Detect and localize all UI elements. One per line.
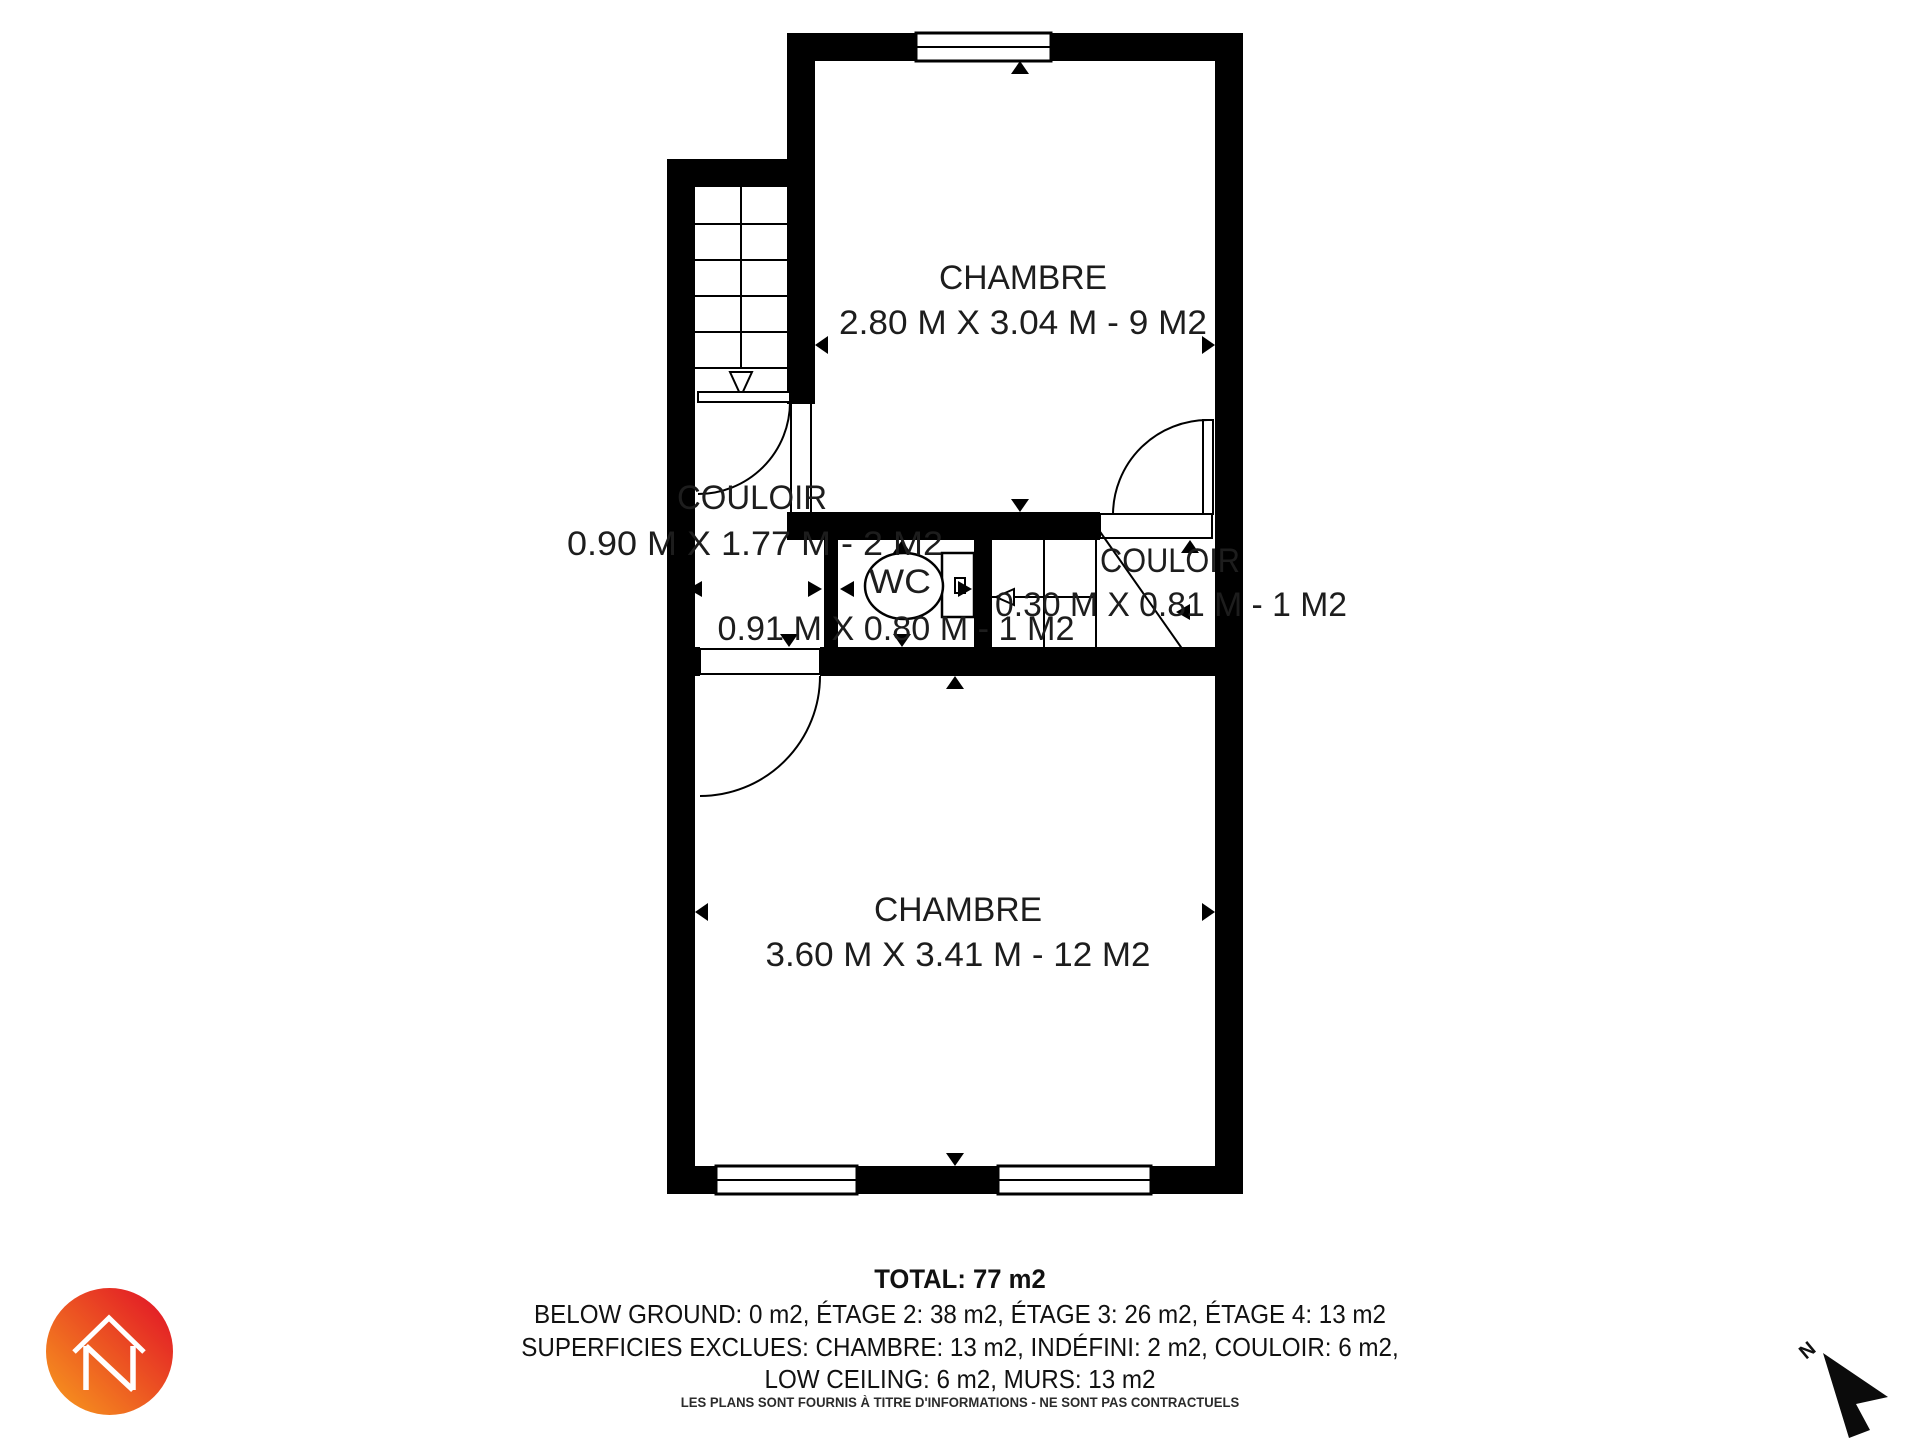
summary-floors: BELOW GROUND: 0 m2, ÉTAGE 2: 38 m2, ÉTAG… <box>67 1299 1853 1330</box>
summary-excluded-areas-2: LOW CEILING: 6 m2, MURS: 13 m2 <box>67 1364 1853 1395</box>
room-name-wc: WC <box>869 563 931 601</box>
floor-plan-drawing: CHAMBRE 2.80 M X 3.04 M - 9 M2 COULOIR 0… <box>0 0 1920 1440</box>
door-chambre-bottom <box>700 649 820 796</box>
room-dims-couloir-left: 0.90 M X 1.77 M - 2 M2 <box>567 525 943 563</box>
door-chambre-top <box>1100 420 1213 538</box>
room-dims-chambre-bottom: 3.60 M X 3.41 M - 12 M2 <box>766 936 1151 974</box>
room-dims-chambre-top: 2.80 M X 3.04 M - 9 M2 <box>839 304 1207 342</box>
room-dims-couloir-right: 0.30 M X 0.81 M - 1 M2 <box>995 586 1347 624</box>
summary-excluded-areas: SUPERFICIES EXCLUES: CHAMBRE: 13 m2, IND… <box>67 1332 1853 1363</box>
room-name-couloir-right: COULOIR <box>1100 542 1240 580</box>
room-name-couloir-left: COULOIR <box>677 479 827 517</box>
window-top <box>916 33 1051 61</box>
window-bottom-left <box>716 1166 857 1194</box>
staircase <box>695 187 787 396</box>
room-name-chambre-bottom: CHAMBRE <box>874 891 1042 929</box>
legal-disclaimer: LES PLANS SONT FOURNIS À TITRE D'INFORMA… <box>29 1395 1891 1410</box>
window-bottom-right <box>998 1166 1151 1194</box>
room-name-chambre-top: CHAMBRE <box>939 259 1107 297</box>
summary-total: TOTAL: 77 m2 <box>48 1264 1872 1295</box>
floor-plan-page: CHAMBRE 2.80 M X 3.04 M - 9 M2 COULOIR 0… <box>0 0 1920 1440</box>
